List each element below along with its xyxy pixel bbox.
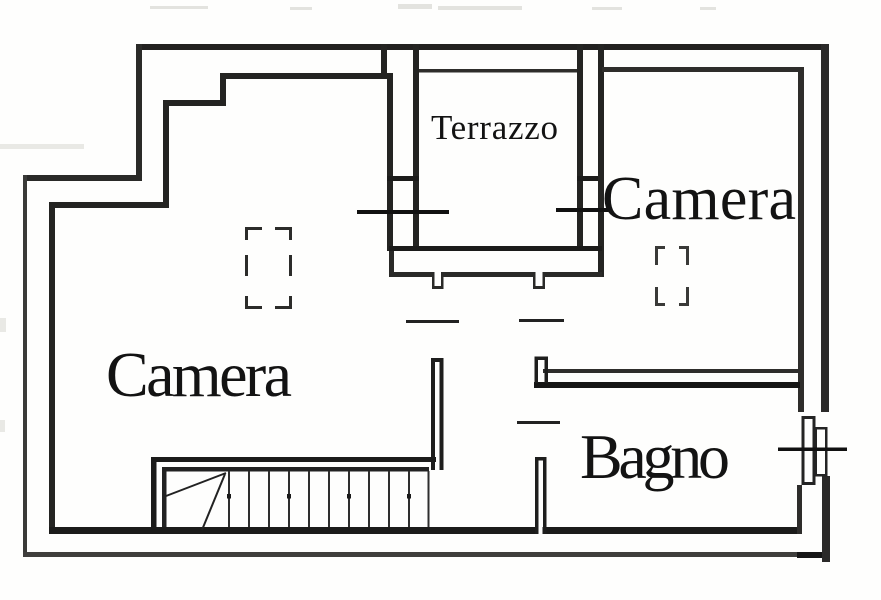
svg-text:Terrazzo: Terrazzo [431, 108, 558, 147]
svg-text:Camera: Camera [106, 339, 292, 410]
svg-text:Bagno: Bagno [580, 421, 730, 492]
svg-text:Camera: Camera [602, 165, 796, 233]
